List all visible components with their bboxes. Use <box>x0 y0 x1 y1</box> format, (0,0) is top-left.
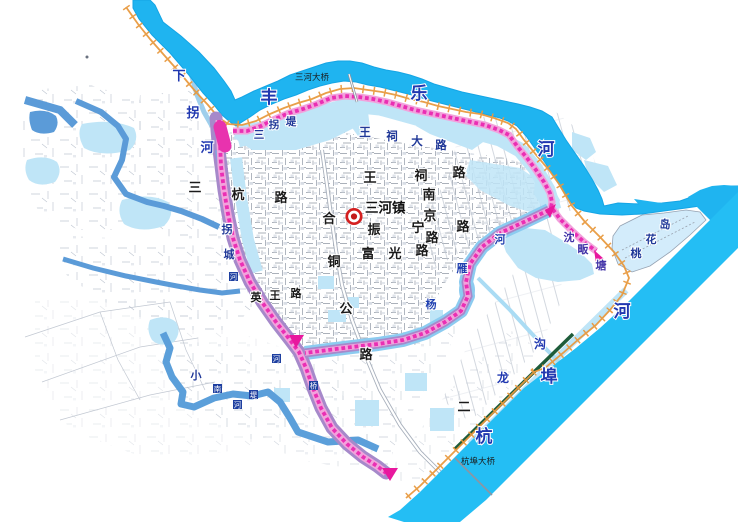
svg-text:河: 河 <box>538 140 555 159</box>
svg-text:路: 路 <box>415 243 429 258</box>
svg-text:河: 河 <box>234 401 242 410</box>
svg-text:龙: 龙 <box>497 370 509 385</box>
svg-text:三: 三 <box>254 129 265 141</box>
svg-text:京: 京 <box>423 208 436 223</box>
svg-text:祠: 祠 <box>386 129 398 143</box>
svg-text:埠: 埠 <box>541 366 558 386</box>
svg-text:丰: 丰 <box>261 87 278 107</box>
svg-text:河: 河 <box>495 232 506 246</box>
svg-text:沈: 沈 <box>564 230 575 244</box>
svg-text:三河大桥: 三河大桥 <box>295 72 330 82</box>
svg-text:堤: 堤 <box>286 115 297 128</box>
svg-text:小: 小 <box>190 368 202 382</box>
svg-text:路: 路 <box>274 190 288 205</box>
svg-text:杭埠大桥: 杭埠大桥 <box>461 456 496 466</box>
svg-text:拐: 拐 <box>186 105 199 120</box>
svg-text:英: 英 <box>250 290 263 304</box>
svg-text:拐: 拐 <box>269 118 280 131</box>
svg-text:桃: 桃 <box>631 246 642 260</box>
svg-text:三: 三 <box>188 180 201 195</box>
svg-text:王: 王 <box>363 170 376 185</box>
svg-text:杭: 杭 <box>476 426 493 446</box>
svg-text:路: 路 <box>359 347 373 362</box>
svg-text:乐: 乐 <box>411 84 428 103</box>
svg-text:振: 振 <box>367 222 380 237</box>
svg-text:路: 路 <box>291 286 303 300</box>
svg-text:花: 花 <box>646 232 657 246</box>
svg-text:南: 南 <box>214 384 222 394</box>
svg-text:铜: 铜 <box>326 254 340 269</box>
svg-text:富: 富 <box>361 246 374 261</box>
svg-text:河: 河 <box>273 355 281 364</box>
svg-text:公: 公 <box>339 301 352 316</box>
svg-text:杭: 杭 <box>231 187 244 202</box>
svg-text:河: 河 <box>230 273 238 282</box>
svg-text:畈: 畈 <box>578 242 590 256</box>
svg-text:塘: 塘 <box>596 258 607 272</box>
svg-text:岛: 岛 <box>660 217 671 231</box>
svg-text:南: 南 <box>422 187 435 202</box>
svg-text:下: 下 <box>172 68 185 83</box>
svg-text:光: 光 <box>387 246 401 261</box>
svg-text:拐: 拐 <box>222 222 233 236</box>
svg-text:祠: 祠 <box>414 168 427 183</box>
svg-text:三河镇: 三河镇 <box>365 200 406 216</box>
svg-text:王: 王 <box>359 126 371 139</box>
svg-text:杨: 杨 <box>426 297 437 311</box>
svg-text:城: 城 <box>224 247 235 261</box>
svg-text:河: 河 <box>614 302 631 321</box>
svg-text:河: 河 <box>200 140 213 155</box>
svg-text:桥: 桥 <box>310 381 318 391</box>
svg-text:路: 路 <box>435 138 447 152</box>
svg-text:合: 合 <box>322 211 336 226</box>
svg-text:二: 二 <box>457 399 470 414</box>
svg-text:大: 大 <box>411 134 423 148</box>
svg-text:雁: 雁 <box>457 262 468 275</box>
svg-text:王: 王 <box>270 289 281 302</box>
svg-text:沟: 沟 <box>534 336 546 351</box>
svg-text:路: 路 <box>456 219 470 234</box>
svg-text:宁: 宁 <box>411 220 424 235</box>
svg-text:堤: 堤 <box>250 390 258 400</box>
svg-text:路: 路 <box>452 165 466 180</box>
